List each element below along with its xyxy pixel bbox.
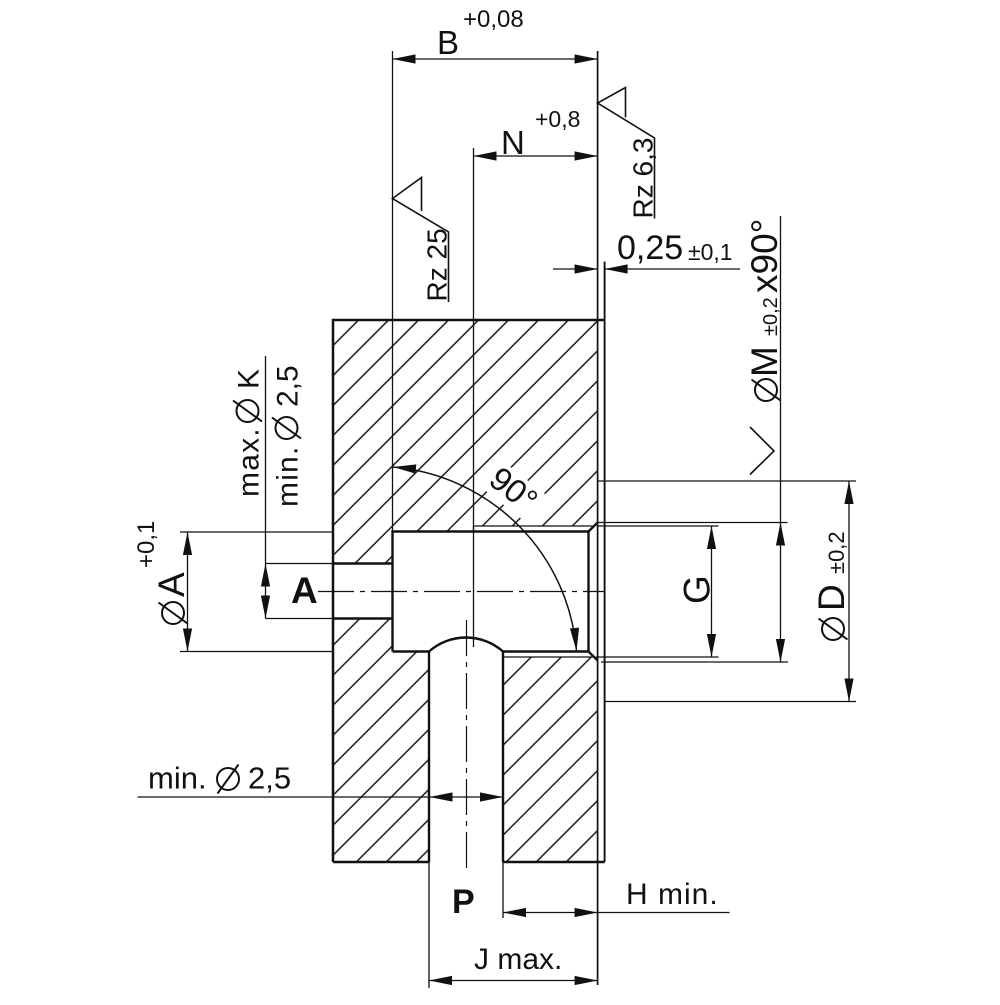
svg-text:N: N bbox=[501, 124, 525, 161]
svg-text:min.: min. bbox=[272, 446, 305, 507]
svg-text:A: A bbox=[291, 570, 318, 611]
svg-text:±0,1: ±0,1 bbox=[688, 239, 733, 265]
svg-text:K: K bbox=[233, 369, 266, 389]
svg-text:M: M bbox=[744, 346, 785, 377]
svg-text:G: G bbox=[677, 575, 718, 604]
svg-text:+0,1: +0,1 bbox=[133, 521, 160, 568]
svg-text:min.: min. bbox=[148, 761, 207, 796]
svg-text:+0,08: +0,08 bbox=[463, 6, 524, 33]
svg-text:x90°: x90° bbox=[744, 219, 785, 293]
svg-text:±0,2: ±0,2 bbox=[824, 531, 849, 574]
svg-text:Rz 6,3: Rz 6,3 bbox=[628, 138, 659, 219]
svg-text:A: A bbox=[151, 572, 192, 597]
svg-text:+0,8: +0,8 bbox=[535, 106, 580, 132]
svg-text:max.: max. bbox=[233, 427, 266, 497]
svg-text:D: D bbox=[811, 584, 852, 611]
svg-text:±0,2: ±0,2 bbox=[760, 297, 782, 336]
svg-text:J max.: J max. bbox=[474, 943, 562, 976]
svg-text:0,25: 0,25 bbox=[617, 229, 683, 267]
svg-text:2,5: 2,5 bbox=[248, 761, 291, 796]
svg-text:2,5: 2,5 bbox=[272, 365, 305, 407]
svg-text:Rz 25: Rz 25 bbox=[422, 228, 453, 301]
svg-text:P: P bbox=[452, 883, 475, 921]
svg-text:H min.: H min. bbox=[626, 878, 719, 911]
svg-text:B: B bbox=[437, 24, 459, 61]
